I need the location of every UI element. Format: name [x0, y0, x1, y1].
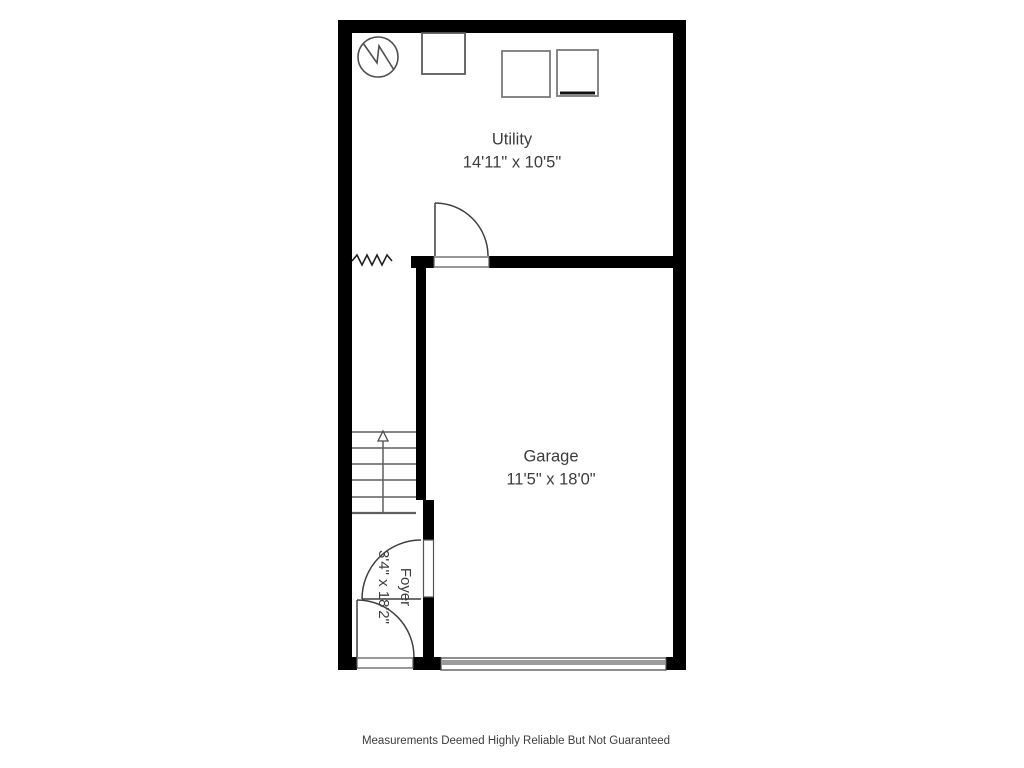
- room-name-utility: Utility: [463, 129, 561, 152]
- break-line-icon: [352, 255, 392, 265]
- disclaimer-text: Measurements Deemed Highly Reliable But …: [362, 735, 670, 747]
- floorplan-symbols-layer: [0, 0, 1024, 768]
- utility-door-swing-icon: [434, 203, 489, 267]
- room-dimensions-foyer: 3'4" x 18'2": [372, 550, 394, 624]
- washer-icon: [502, 51, 550, 97]
- water-heater-icon: [358, 37, 398, 77]
- room-label-utility: Utility 14'11" x 10'5": [463, 129, 561, 176]
- room-dimensions-garage: 11'5" x 18'0": [506, 469, 595, 492]
- floor-plan: Utility 14'11" x 10'5" Garage 11'5" x 18…: [0, 0, 1024, 768]
- room-label-foyer: Foyer 3'4" x 18'2": [372, 550, 416, 624]
- garage-door-icon: [441, 658, 666, 670]
- room-label-garage: Garage 11'5" x 18'0": [506, 446, 595, 493]
- appliance-icon: [422, 33, 465, 74]
- room-name-foyer: Foyer: [394, 550, 416, 624]
- room-dimensions-utility: 14'11" x 10'5": [463, 152, 561, 175]
- stairs-up-arrow-icon: [352, 431, 416, 513]
- dryer-icon: [557, 50, 598, 96]
- room-name-garage: Garage: [506, 446, 595, 469]
